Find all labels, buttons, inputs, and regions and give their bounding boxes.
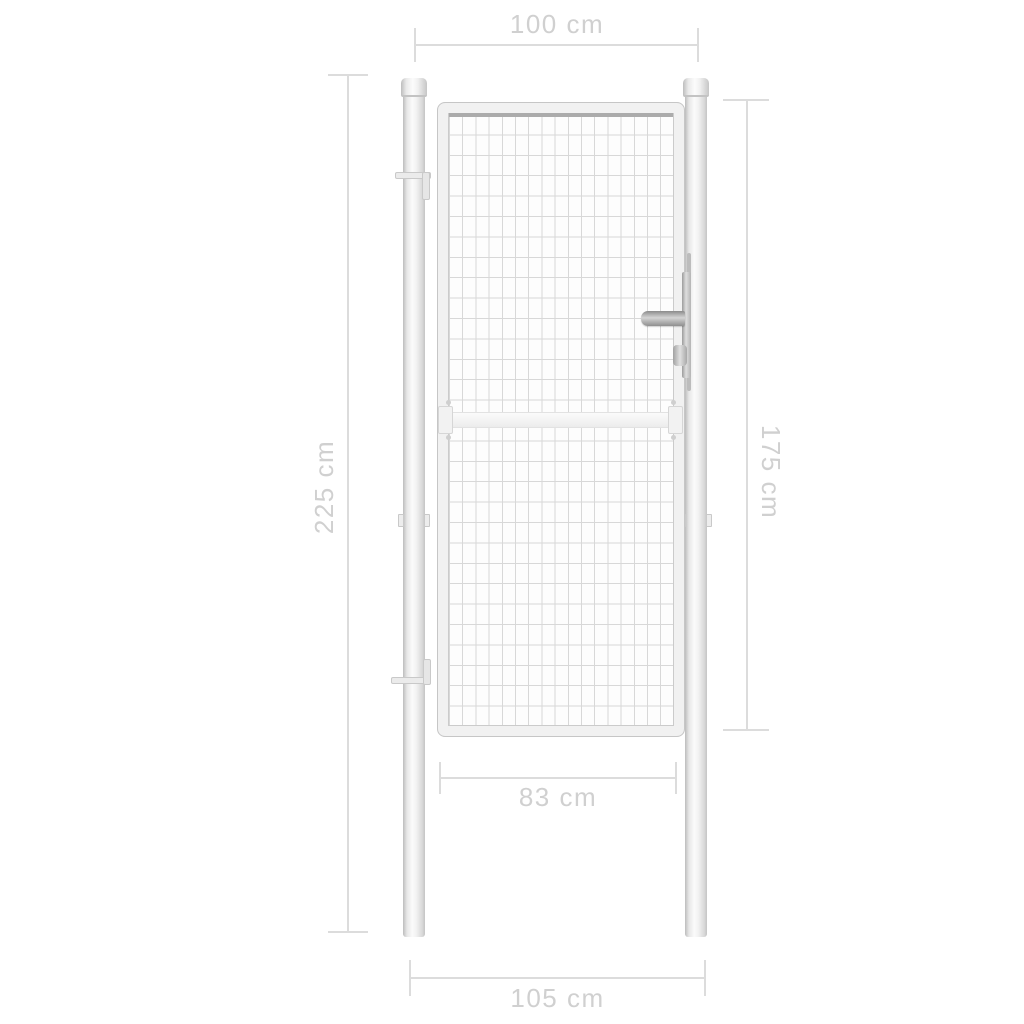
rail-bolt-top-left bbox=[446, 400, 451, 405]
dimension-line-left bbox=[347, 75, 349, 933]
bottom-hinge-knuckle bbox=[423, 659, 431, 685]
dimension-line-right bbox=[746, 100, 748, 731]
mesh-top-wire bbox=[449, 113, 673, 117]
dimension-tick-left-top bbox=[328, 74, 368, 76]
top-hinge-knuckle bbox=[422, 172, 430, 200]
left-post-joint-tab-inner bbox=[424, 514, 430, 527]
handle-lever bbox=[641, 311, 685, 326]
rail-bolt-bottom-left bbox=[446, 435, 451, 440]
dimension-label-inner: 83 cm bbox=[440, 783, 676, 811]
dimension-tick-top-left bbox=[414, 28, 416, 62]
dimension-label-top: 100 cm bbox=[415, 10, 699, 38]
right-post-cap bbox=[683, 78, 709, 97]
dimension-line-bottom bbox=[410, 977, 705, 979]
middle-rail bbox=[444, 412, 678, 428]
dimension-tick-right-top bbox=[723, 99, 769, 101]
dimension-label-right: 175 cm bbox=[757, 412, 785, 532]
lock-cylinder bbox=[673, 345, 687, 366]
left-post-cap bbox=[401, 78, 427, 97]
dimension-tick-top-right bbox=[697, 28, 699, 62]
product-dimension-diagram: 100 cm 225 cm 175 cm 83 cm 105 cm bbox=[0, 0, 1024, 1024]
rail-bracket-right bbox=[668, 406, 683, 434]
dimension-tick-right-bottom bbox=[723, 729, 769, 731]
left-post-joint-tab-outer bbox=[398, 514, 404, 527]
dimension-label-left: 225 cm bbox=[310, 427, 338, 547]
rail-bracket-left bbox=[438, 406, 453, 434]
rail-bolt-bottom-right bbox=[671, 435, 676, 440]
right-post bbox=[685, 96, 707, 937]
dimension-tick-left-bottom bbox=[328, 931, 368, 933]
rail-bolt-top-right bbox=[671, 400, 676, 405]
dimension-line-inner bbox=[440, 777, 676, 779]
dimension-line-top bbox=[415, 44, 699, 46]
right-post-joint-tab-outer bbox=[706, 514, 712, 527]
dimension-label-bottom: 105 cm bbox=[410, 984, 705, 1012]
left-post bbox=[403, 96, 425, 937]
